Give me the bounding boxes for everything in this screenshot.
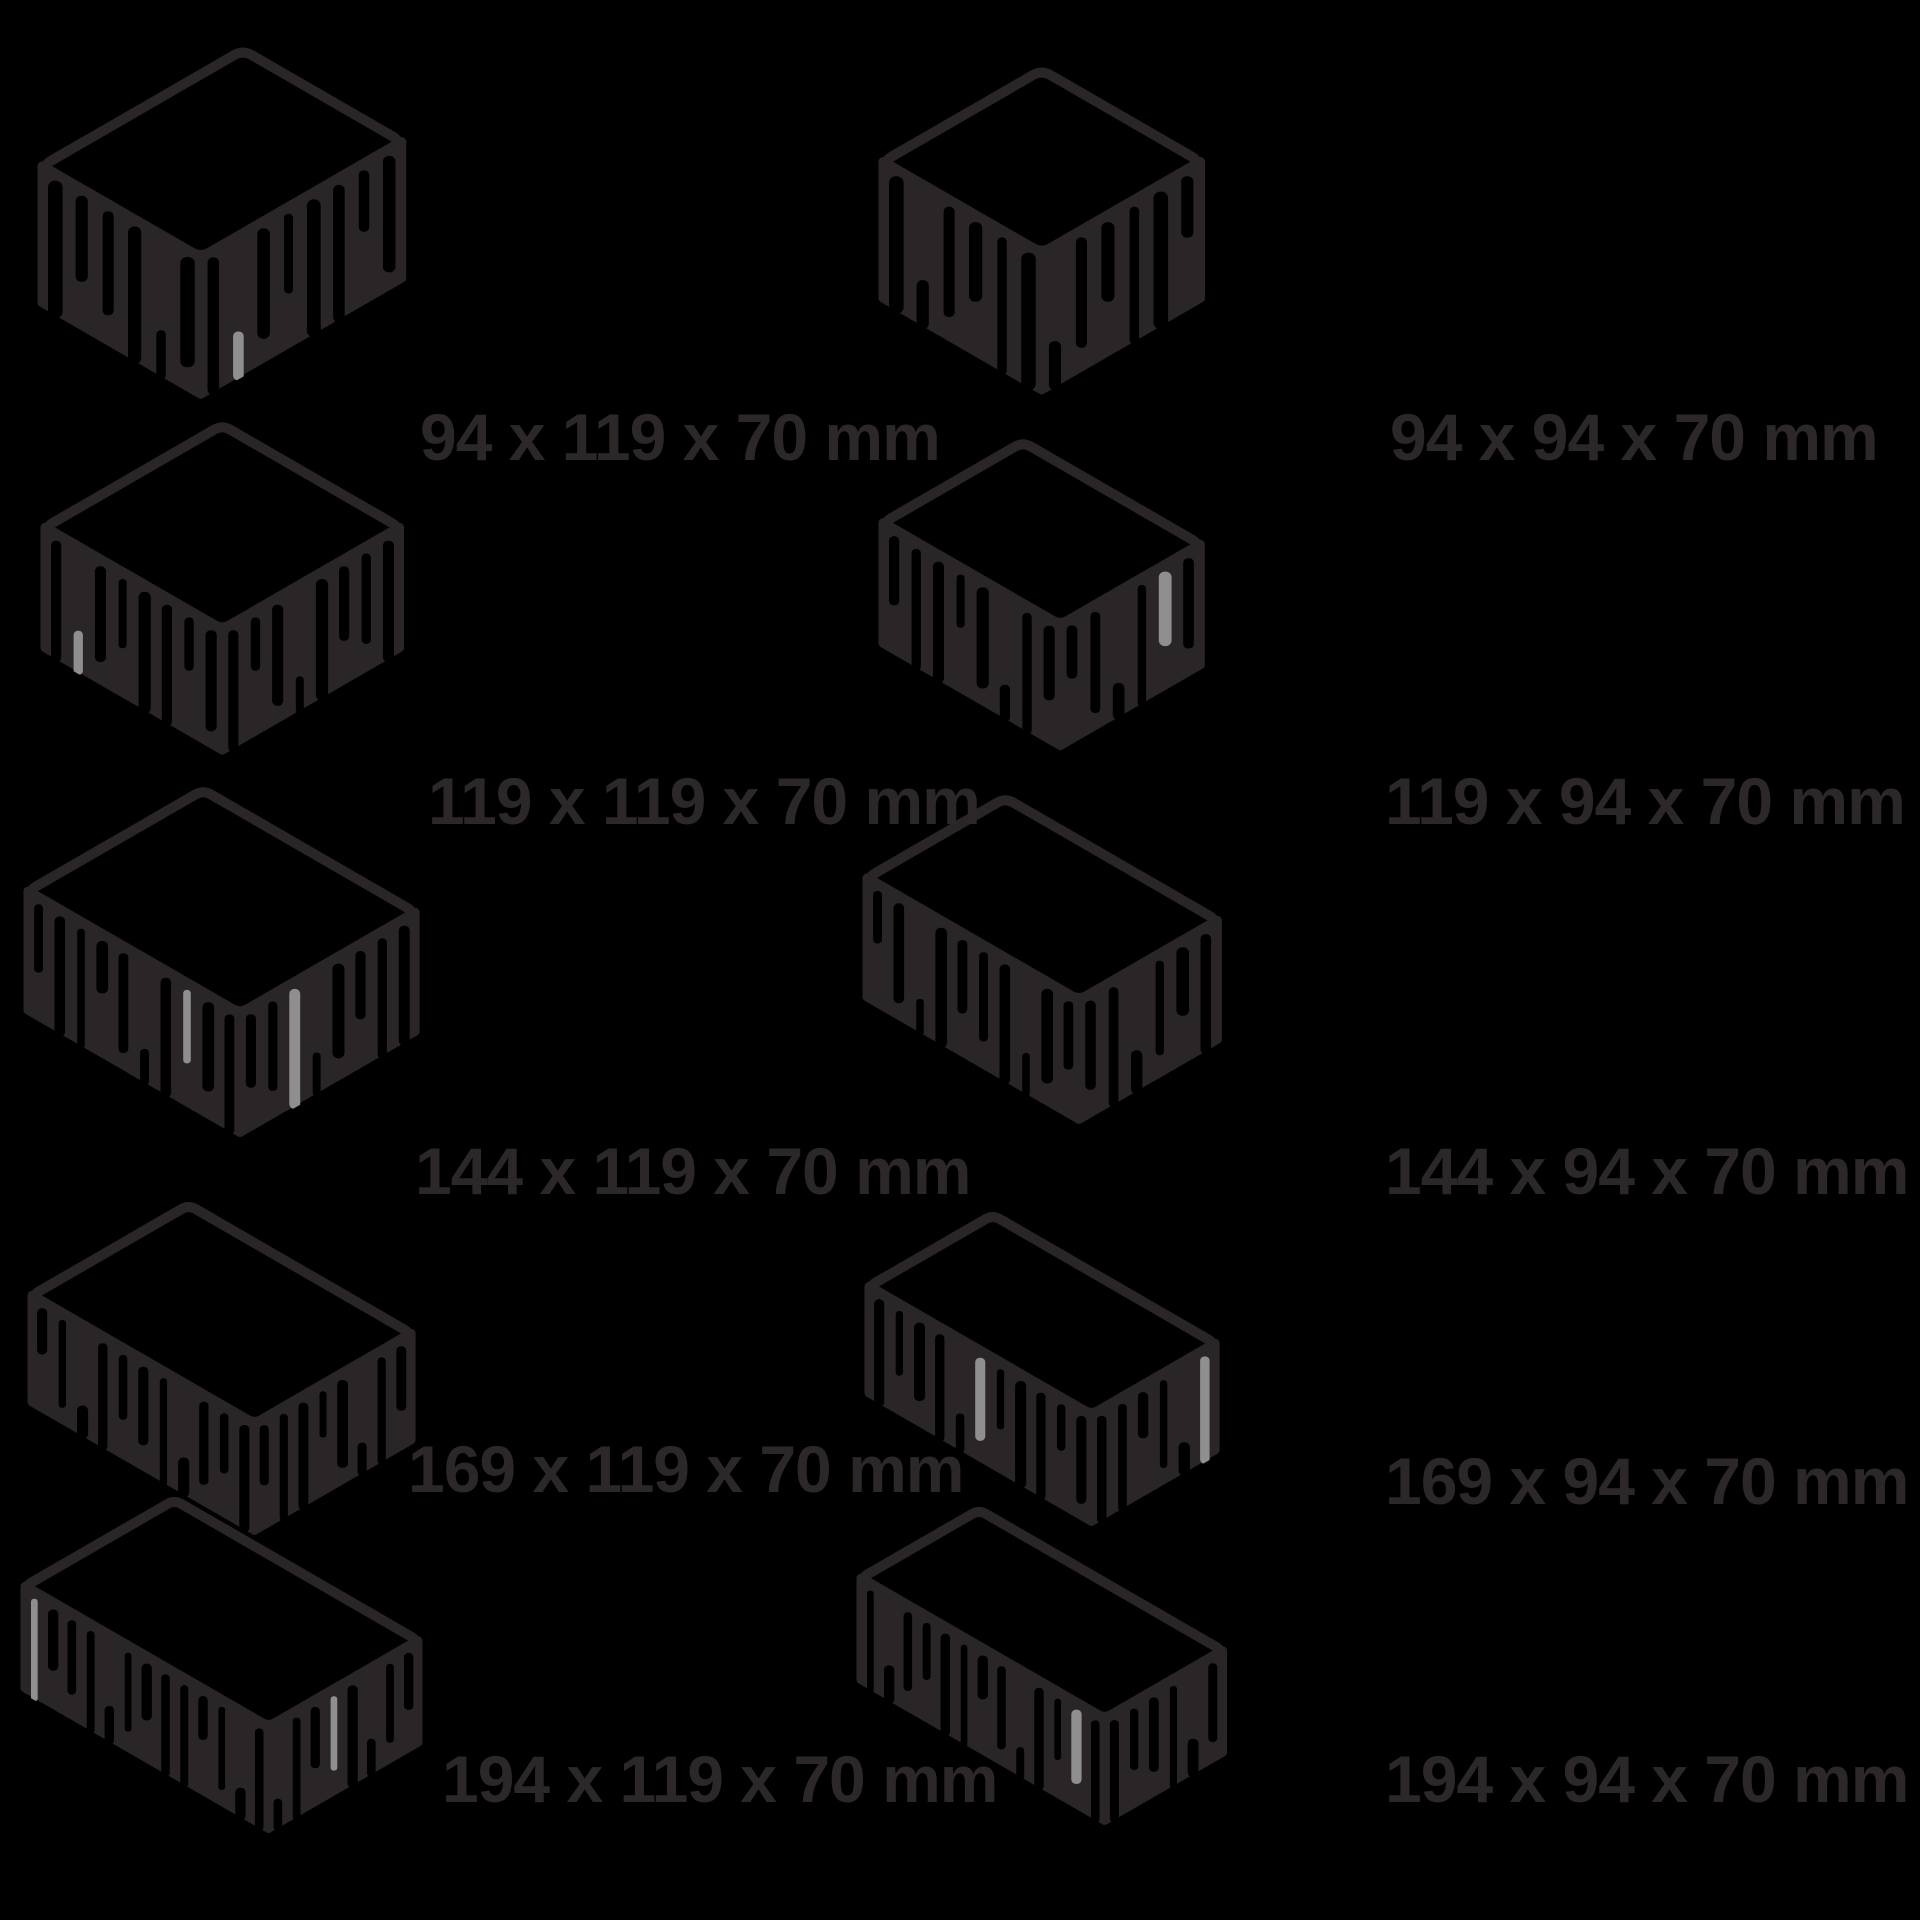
stone-illustration-119x119x70 xyxy=(35,415,410,761)
dimension-label-144x94x70: 144 x 94 x 70 mm xyxy=(1385,1138,1908,1204)
dimension-label-94x119x70: 94 x 119 x 70 mm xyxy=(420,404,940,470)
stone-illustration-144x119x70 xyxy=(18,780,426,1143)
paving-stone-size-chart: 94 x 119 x 70 mm 119 x 119 x 70 mm 144 x… xyxy=(0,0,1920,1920)
dimension-label-144x119x70: 144 x 119 x 70 mm xyxy=(415,1138,970,1204)
stone-illustration-119x94x70 xyxy=(873,432,1211,756)
dimension-label-194x94x70: 194 x 94 x 70 mm xyxy=(1385,1746,1908,1812)
dimension-label-169x119x70: 169 x 119 x 70 mm xyxy=(408,1436,963,1502)
dimension-label-169x94x70: 169 x 94 x 70 mm xyxy=(1385,1448,1908,1514)
dimension-label-119x119x70: 119 x 119 x 70 mm xyxy=(428,768,980,834)
dimension-label-94x94x70: 94 x 94 x 70 mm xyxy=(1390,404,1878,470)
stone-illustration-94x119x70 xyxy=(32,40,412,405)
dimension-label-194x119x70: 194 x 119 x 70 mm xyxy=(442,1746,997,1812)
stone-illustration-194x119x70 xyxy=(15,1490,429,1839)
stone-illustration-144x94x70 xyxy=(857,788,1228,1130)
dimension-label-119x94x70: 119 x 94 x 70 mm xyxy=(1385,768,1905,834)
stone-illustration-94x94x70 xyxy=(873,60,1211,400)
